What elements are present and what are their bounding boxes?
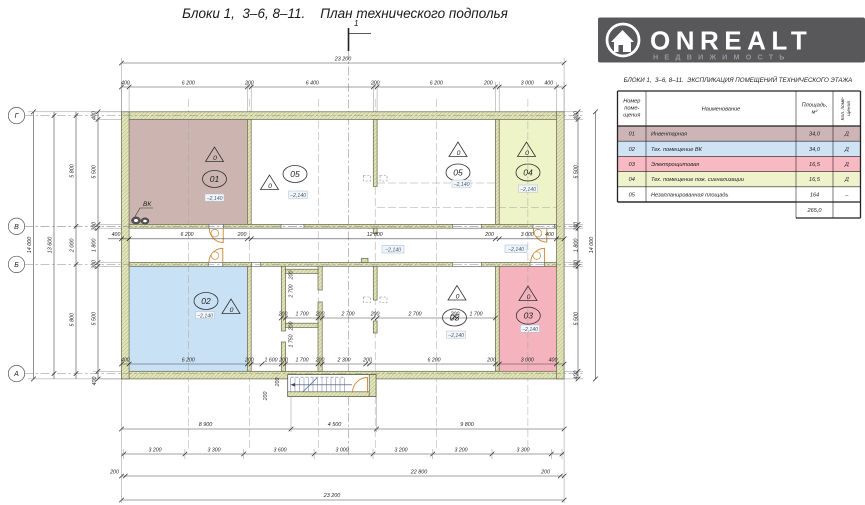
svg-text:400: 400 xyxy=(112,232,121,238)
svg-text:16,5: 16,5 xyxy=(809,162,821,168)
svg-text:1 700: 1 700 xyxy=(296,358,309,364)
svg-text:5 800: 5 800 xyxy=(70,313,76,327)
svg-text:−2,140: −2,140 xyxy=(453,182,469,188)
svg-text:3 200: 3 200 xyxy=(455,448,468,454)
svg-text:200: 200 xyxy=(315,312,325,318)
svg-text:−2,140: −2,140 xyxy=(522,327,538,333)
svg-text:34,0: 34,0 xyxy=(809,132,821,138)
svg-text:04: 04 xyxy=(523,167,533,177)
svg-text:200: 200 xyxy=(244,81,254,87)
svg-text:−2,140: −2,140 xyxy=(290,193,306,199)
svg-text:А: А xyxy=(13,371,19,378)
svg-text:200: 200 xyxy=(573,222,579,232)
svg-text:14 000: 14 000 xyxy=(589,237,595,254)
svg-text:265,0: 265,0 xyxy=(807,208,823,214)
svg-text:3 000: 3 000 xyxy=(521,81,534,87)
svg-text:14 000: 14 000 xyxy=(27,237,33,254)
svg-text:05: 05 xyxy=(629,192,636,198)
svg-text:400: 400 xyxy=(549,358,558,364)
svg-text:0: 0 xyxy=(527,294,531,301)
svg-text:Незапланированная площадь: Незапланированная площадь xyxy=(651,192,729,198)
svg-text:Инвентарная: Инвентарная xyxy=(651,132,687,138)
svg-text:БЛОКИ 1, 3–6, 8–11. ЭКСПЛИКА: БЛОКИ 1, 3–6, 8–11. ЭКСПЛИКАЦИЯ ПОМЕЩЕНИ… xyxy=(624,76,853,84)
svg-text:400: 400 xyxy=(573,371,579,380)
svg-text:05: 05 xyxy=(453,167,463,177)
svg-text:Электрощитовая: Электрощитовая xyxy=(651,162,699,168)
svg-text:−2,140: −2,140 xyxy=(385,247,401,253)
svg-text:Д: Д xyxy=(844,147,849,153)
svg-text:6 200: 6 200 xyxy=(181,232,194,238)
svg-text:200: 200 xyxy=(278,358,288,364)
svg-text:0: 0 xyxy=(457,150,461,157)
svg-text:03: 03 xyxy=(524,311,534,321)
svg-text:−2,140: −2,140 xyxy=(520,187,536,193)
svg-text:Наименование: Наименование xyxy=(702,107,741,113)
svg-text:01: 01 xyxy=(210,174,220,184)
svg-text:щения: щения xyxy=(847,101,852,116)
svg-text:04: 04 xyxy=(629,177,635,183)
svg-text:200: 200 xyxy=(263,392,269,402)
svg-text:3 200: 3 200 xyxy=(395,448,408,454)
svg-text:200: 200 xyxy=(370,312,380,318)
svg-text:1 800: 1 800 xyxy=(92,239,98,253)
svg-text:200: 200 xyxy=(244,358,254,364)
svg-text:200: 200 xyxy=(486,358,496,364)
svg-text:−2,140: −2,140 xyxy=(206,196,222,202)
svg-text:200: 200 xyxy=(450,312,460,318)
svg-text:400: 400 xyxy=(544,81,553,87)
svg-text:6 200: 6 200 xyxy=(428,358,441,364)
svg-text:400: 400 xyxy=(121,358,130,364)
svg-text:200: 200 xyxy=(289,271,295,281)
svg-text:НЕДВИЖИМОСТЬ: НЕДВИЖИМОСТЬ xyxy=(653,53,791,62)
svg-text:1 800: 1 800 xyxy=(573,239,579,253)
svg-text:−2,140: −2,140 xyxy=(448,333,464,339)
svg-text:Д: Д xyxy=(844,162,849,168)
svg-text:400: 400 xyxy=(92,111,98,120)
svg-text:400: 400 xyxy=(121,81,130,87)
svg-text:200: 200 xyxy=(483,81,493,87)
svg-text:8 900: 8 900 xyxy=(199,422,213,428)
svg-text:3 300: 3 300 xyxy=(517,448,530,454)
svg-text:3 200: 3 200 xyxy=(149,448,162,454)
svg-text:щения: щения xyxy=(623,113,640,119)
svg-text:−2,140: −2,140 xyxy=(197,313,213,319)
svg-text:Д: Д xyxy=(844,132,849,138)
svg-text:ONREALT: ONREALT xyxy=(650,26,812,56)
svg-text:13 600: 13 600 xyxy=(48,237,54,254)
svg-text:2 000: 2 000 xyxy=(70,239,76,254)
svg-text:В: В xyxy=(14,224,19,231)
svg-text:−2,140: −2,140 xyxy=(508,247,524,253)
svg-text:Кол. поме-: Кол. поме- xyxy=(840,96,846,120)
svg-text:3 300: 3 300 xyxy=(208,448,221,454)
svg-text:200: 200 xyxy=(237,232,247,238)
svg-text:5 500: 5 500 xyxy=(92,165,98,179)
svg-text:Площадь,: Площадь, xyxy=(802,103,828,109)
svg-text:02: 02 xyxy=(629,147,636,153)
svg-text:Номер: Номер xyxy=(623,99,640,105)
svg-text:0: 0 xyxy=(525,150,529,157)
svg-text:12 800: 12 800 xyxy=(367,232,383,238)
svg-text:ВК: ВК xyxy=(143,201,152,208)
svg-text:01: 01 xyxy=(629,132,635,138)
svg-text:22 800: 22 800 xyxy=(410,470,428,476)
svg-text:200: 200 xyxy=(370,81,380,87)
svg-text:1 700: 1 700 xyxy=(296,312,309,318)
svg-text:Д: Д xyxy=(844,177,849,183)
svg-text:2 700: 2 700 xyxy=(341,312,355,318)
svg-text:6 200: 6 200 xyxy=(182,358,195,364)
svg-text:02: 02 xyxy=(201,296,211,306)
svg-text:поме-: поме- xyxy=(624,106,639,112)
svg-text:200: 200 xyxy=(289,322,295,332)
svg-text:Тех. помещение ВК: Тех. помещение ВК xyxy=(651,147,703,153)
svg-text:Тех. помещение пож. сигнализац: Тех. помещение пож. сигнализации xyxy=(651,177,744,183)
svg-text:5 500: 5 500 xyxy=(92,312,98,326)
svg-text:400: 400 xyxy=(92,377,98,386)
svg-text:3 000: 3 000 xyxy=(336,448,349,454)
svg-text:3 000: 3 000 xyxy=(521,358,534,364)
svg-text:0: 0 xyxy=(268,183,272,190)
svg-text:400: 400 xyxy=(545,232,554,238)
svg-text:9 800: 9 800 xyxy=(460,422,474,428)
svg-text:2 700: 2 700 xyxy=(289,284,295,298)
svg-text:400: 400 xyxy=(573,111,579,120)
svg-text:200: 200 xyxy=(484,232,494,238)
svg-text:1: 1 xyxy=(354,19,358,28)
svg-text:5 500: 5 500 xyxy=(573,165,579,179)
svg-text:200: 200 xyxy=(275,378,281,388)
svg-text:Блоки 1, 3–6, 8–11. План т: Блоки 1, 3–6, 8–11. План технического по… xyxy=(182,6,508,21)
svg-text:0: 0 xyxy=(213,155,217,162)
svg-text:4 500: 4 500 xyxy=(328,422,342,428)
svg-text:200: 200 xyxy=(92,260,98,270)
svg-text:Б: Б xyxy=(14,262,19,269)
svg-text:200: 200 xyxy=(315,358,325,364)
svg-text:200: 200 xyxy=(540,470,550,476)
svg-text:03: 03 xyxy=(629,162,636,168)
svg-text:6 200: 6 200 xyxy=(182,81,195,87)
svg-text:200: 200 xyxy=(278,312,288,318)
svg-text:23 200: 23 200 xyxy=(334,57,352,63)
svg-text:34,0: 34,0 xyxy=(809,147,821,153)
svg-text:0: 0 xyxy=(456,294,460,301)
svg-text:2 300: 2 300 xyxy=(337,358,351,364)
svg-text:23 200: 23 200 xyxy=(323,493,341,499)
svg-text:6 200: 6 200 xyxy=(430,81,443,87)
svg-text:16,5: 16,5 xyxy=(809,177,821,183)
svg-text:200: 200 xyxy=(573,260,579,270)
svg-text:200: 200 xyxy=(109,470,119,476)
svg-text:1 600: 1 600 xyxy=(265,358,278,364)
svg-text:1 700: 1 700 xyxy=(470,312,483,318)
svg-text:05: 05 xyxy=(290,169,300,179)
svg-text:5 800: 5 800 xyxy=(70,164,76,178)
svg-text:0: 0 xyxy=(230,307,234,314)
svg-text:3 000: 3 000 xyxy=(521,232,534,238)
svg-text:3 600: 3 600 xyxy=(274,448,287,454)
svg-text:200: 200 xyxy=(362,358,372,364)
svg-text:164: 164 xyxy=(810,192,819,198)
svg-text:5 500: 5 500 xyxy=(573,312,579,326)
svg-text:1 750: 1 750 xyxy=(289,334,295,347)
svg-text:2 700: 2 700 xyxy=(408,312,422,318)
svg-text:200: 200 xyxy=(92,222,98,232)
svg-text:6 400: 6 400 xyxy=(306,81,319,87)
